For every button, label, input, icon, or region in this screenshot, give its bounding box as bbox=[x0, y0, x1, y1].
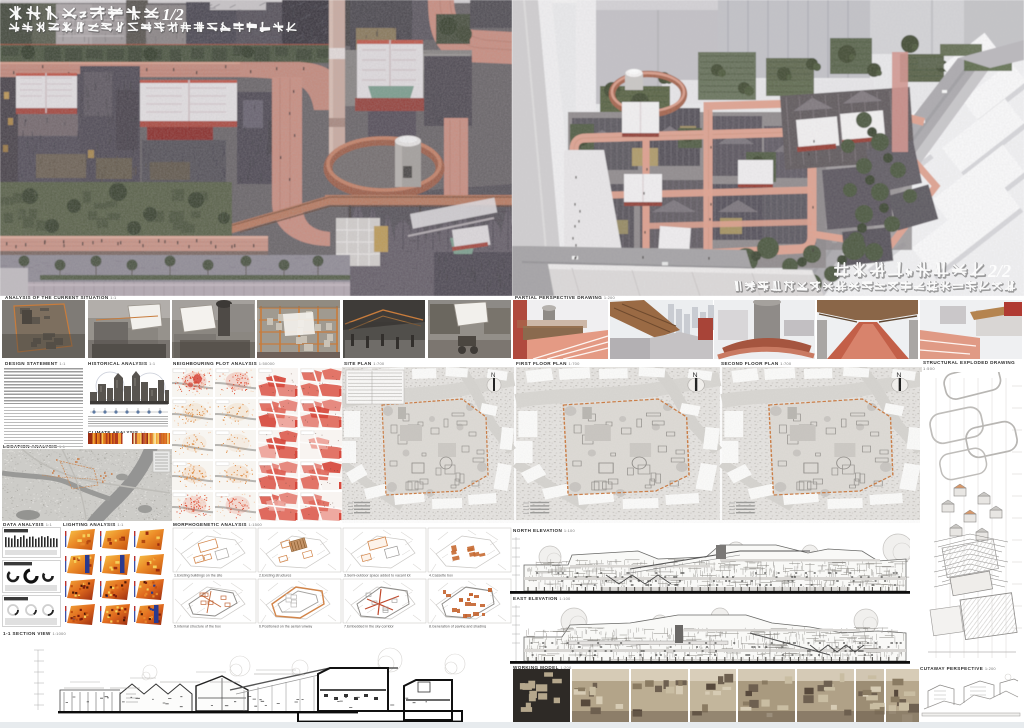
svg-text:7.Embedded in the sky corridor: 7.Embedded in the sky corridor bbox=[344, 625, 395, 629]
svg-text:3.Semi-outdoor space added to: 3.Semi-outdoor space added to vacant lot bbox=[344, 574, 411, 578]
svg-text:1/2: 1/2 bbox=[162, 5, 184, 24]
svg-text:4.Cassette box: 4.Cassette box bbox=[429, 574, 453, 578]
svg-text:5.Internal structure of the bo: 5.Internal structure of the box bbox=[174, 625, 221, 629]
svg-text:1.Existing buildings on the si: 1.Existing buildings on the site bbox=[174, 574, 222, 578]
svg-text:6.Positioned on the aerial run: 6.Positioned on the aerial runway bbox=[259, 625, 312, 629]
svg-text:2/2: 2/2 bbox=[987, 261, 1011, 281]
svg-text:8.Generation of paving and sha: 8.Generation of paving and shading bbox=[429, 625, 486, 629]
svg-text:2.Existing structures: 2.Existing structures bbox=[259, 574, 292, 578]
